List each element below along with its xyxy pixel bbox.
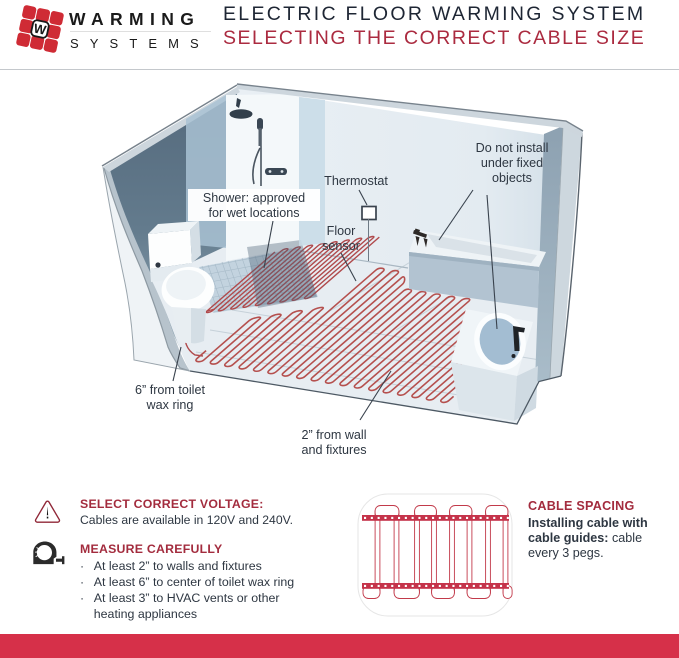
svg-text:objects: objects: [492, 171, 532, 185]
svg-text:wax ring: wax ring: [146, 398, 194, 412]
svg-text:for wet locations: for wet locations: [209, 206, 300, 220]
svg-text:Floor: Floor: [327, 224, 356, 238]
svg-text:2” from wall: 2” from wall: [301, 428, 366, 442]
svg-text:under fixed: under fixed: [481, 156, 543, 170]
svg-text:6” from toilet: 6” from toilet: [135, 383, 205, 397]
svg-text:sensor: sensor: [322, 239, 360, 253]
svg-text:Thermostat: Thermostat: [324, 174, 388, 188]
svg-text:Shower: approved: Shower: approved: [203, 191, 305, 205]
svg-text:Do not install: Do not install: [476, 141, 549, 155]
svg-text:and fixtures: and fixtures: [301, 443, 366, 457]
